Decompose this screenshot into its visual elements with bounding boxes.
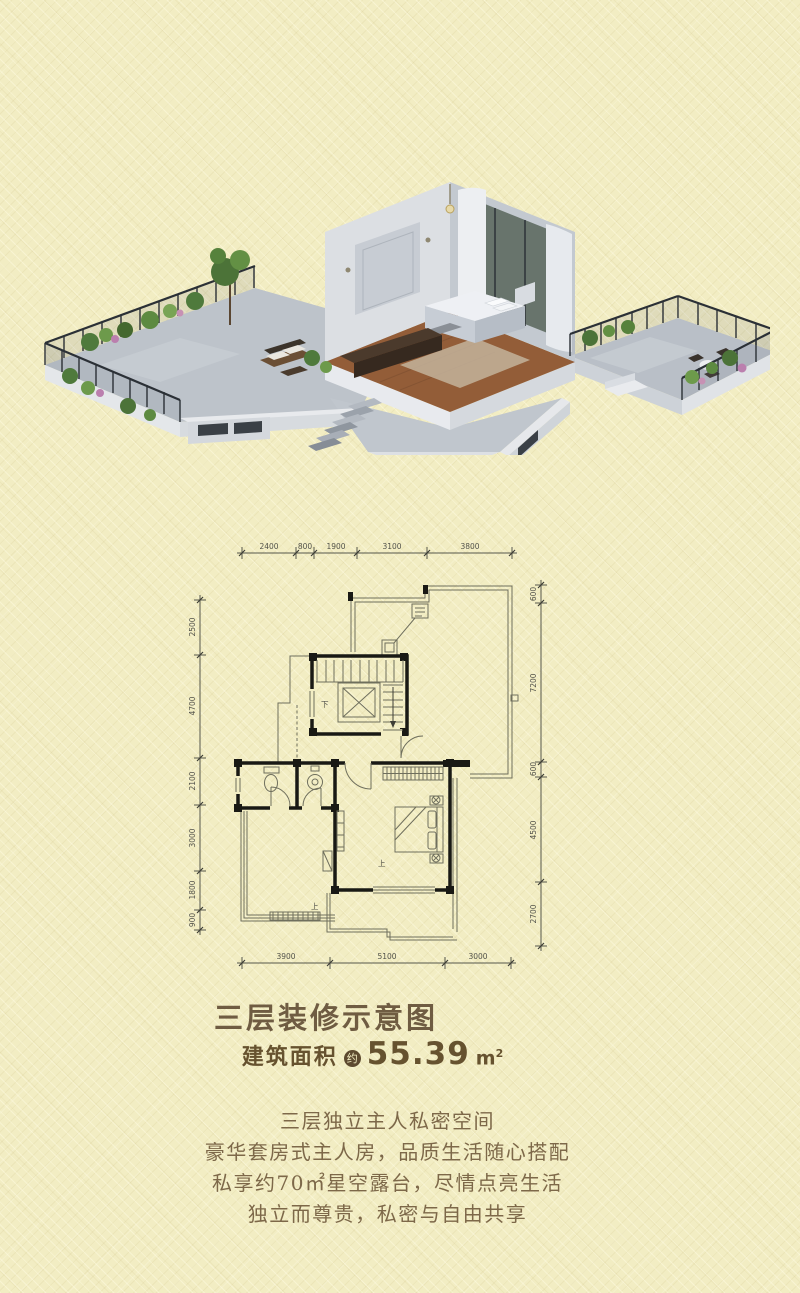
description-line: 豪华套房式主人房，品质生活随心搭配 <box>0 1137 775 1168</box>
stair-down-label: 下 <box>321 700 329 709</box>
bathroom <box>233 759 339 813</box>
dim-label: 1900 <box>326 542 345 551</box>
bedroom: 上 上 <box>311 759 470 911</box>
area-unit: m2 <box>476 1047 503 1069</box>
dim-bottom: 3900 5100 3000 <box>237 952 516 969</box>
description-line: 三层独立主人私密空间 <box>0 1106 775 1137</box>
pendant-lamp <box>446 205 454 213</box>
dim-top: 2400 800 1900 3100 3800 <box>237 542 517 559</box>
dim-left: 2500 4700 2100 3000 1800 900 <box>188 595 206 935</box>
step-up-label: 上 <box>378 859 386 868</box>
dim-label: 900 <box>188 913 197 928</box>
area-label: 建筑面积 <box>242 1039 338 1071</box>
poster-page: 2400 800 1900 3100 3800 2500 4700 2100 3… <box>0 0 800 1293</box>
dim-label: 7200 <box>529 673 538 692</box>
dim-right: 600 7200 600 4500 2700 <box>529 580 547 951</box>
dim-label: 3800 <box>460 542 479 551</box>
bed-symbol <box>395 807 443 852</box>
description: 三层独立主人私密空间 豪华套房式主人房，品质生活随心搭配 私享约70㎡星空露台，… <box>0 1106 775 1230</box>
dim-label: 4700 <box>188 696 197 715</box>
page-title: 三层装修示意图 <box>214 995 438 1037</box>
dim-label: 2100 <box>188 771 197 790</box>
dim-label: 3100 <box>382 542 401 551</box>
dim-label: 5100 <box>377 952 396 961</box>
approx-badge: 约 <box>344 1050 361 1067</box>
dim-label: 3000 <box>188 828 197 847</box>
curtain-right <box>546 224 572 352</box>
area-line: 建筑面积 约 55.39 m2 <box>0 1036 745 1072</box>
dim-label: 2400 <box>259 542 278 551</box>
dim-label: 800 <box>298 542 313 551</box>
dim-label: 4500 <box>529 820 538 839</box>
toilet <box>264 767 279 773</box>
dim-label: 600 <box>529 587 538 602</box>
dim-label: 2700 <box>529 904 538 923</box>
area-value: 55.39 <box>367 1036 470 1072</box>
step-up-label: 上 <box>311 902 319 911</box>
dim-label: 3000 <box>468 952 487 961</box>
dim-label: 600 <box>529 762 538 777</box>
dim-label: 3900 <box>276 952 295 961</box>
3d-apartment-render <box>30 160 770 455</box>
description-line: 独立而尊贵，私密与自由共享 <box>0 1199 775 1230</box>
description-line: 私享约70㎡星空露台，尽情点亮生活 <box>0 1168 775 1199</box>
floor-plan: 2400 800 1900 3100 3800 2500 4700 2100 3… <box>185 535 565 975</box>
dim-label: 1800 <box>188 880 197 899</box>
tv-cabinet-symbol <box>337 811 344 851</box>
sink <box>308 775 323 790</box>
stair-room: 下 <box>307 653 423 758</box>
dim-label: 2500 <box>188 617 197 636</box>
